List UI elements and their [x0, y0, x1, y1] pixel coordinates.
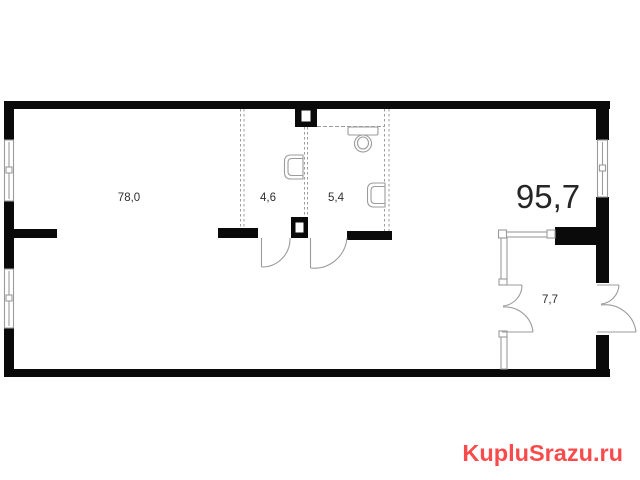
wall-right-b: [596, 197, 609, 283]
wall-bathroom-south: [347, 231, 392, 240]
window-left-upper: [5, 140, 14, 201]
toilet: [348, 127, 378, 152]
wall-left-b: [4, 201, 14, 269]
vent-shaft-bottom: [291, 217, 308, 238]
area-label-main-room: 78,0: [118, 192, 140, 204]
door-exterior: [597, 285, 636, 332]
area-label-hall: 4,6: [260, 192, 276, 204]
zone-line-mainroom-hall: [241, 109, 245, 228]
vent-shaft-top: [295, 105, 317, 127]
sink-hall: [285, 155, 304, 179]
total-area-label: 95,7: [516, 178, 580, 215]
door-bathroom: [311, 238, 348, 268]
wall-right-c: [596, 335, 609, 369]
area-label-bathroom: 5,4: [328, 192, 345, 204]
window-left-lower: [5, 269, 14, 328]
wall-stub-left: [14, 229, 57, 238]
sink-bathroom: [368, 183, 386, 207]
area-label-balcony: 7,7: [542, 294, 558, 306]
wall-left-c: [4, 328, 14, 369]
wall-stub-balcony: [555, 227, 596, 245]
wall-left-a: [4, 109, 14, 140]
window-right: [598, 140, 608, 197]
wall-bottom: [4, 369, 610, 377]
floor-plan: 78,0 4,6 5,4 7,7 95,7 KupluSrazu.ru: [0, 0, 640, 480]
door-hall: [262, 238, 291, 267]
watermark-logo: KupluSrazu.ru: [462, 440, 623, 466]
zone-line-bathroom-right: [385, 109, 390, 231]
wall-right-a: [596, 109, 609, 140]
zone-line-hall-bathroom: [305, 127, 308, 217]
wall-stub-middle: [218, 228, 258, 238]
door-balcony-inner: [502, 285, 533, 332]
